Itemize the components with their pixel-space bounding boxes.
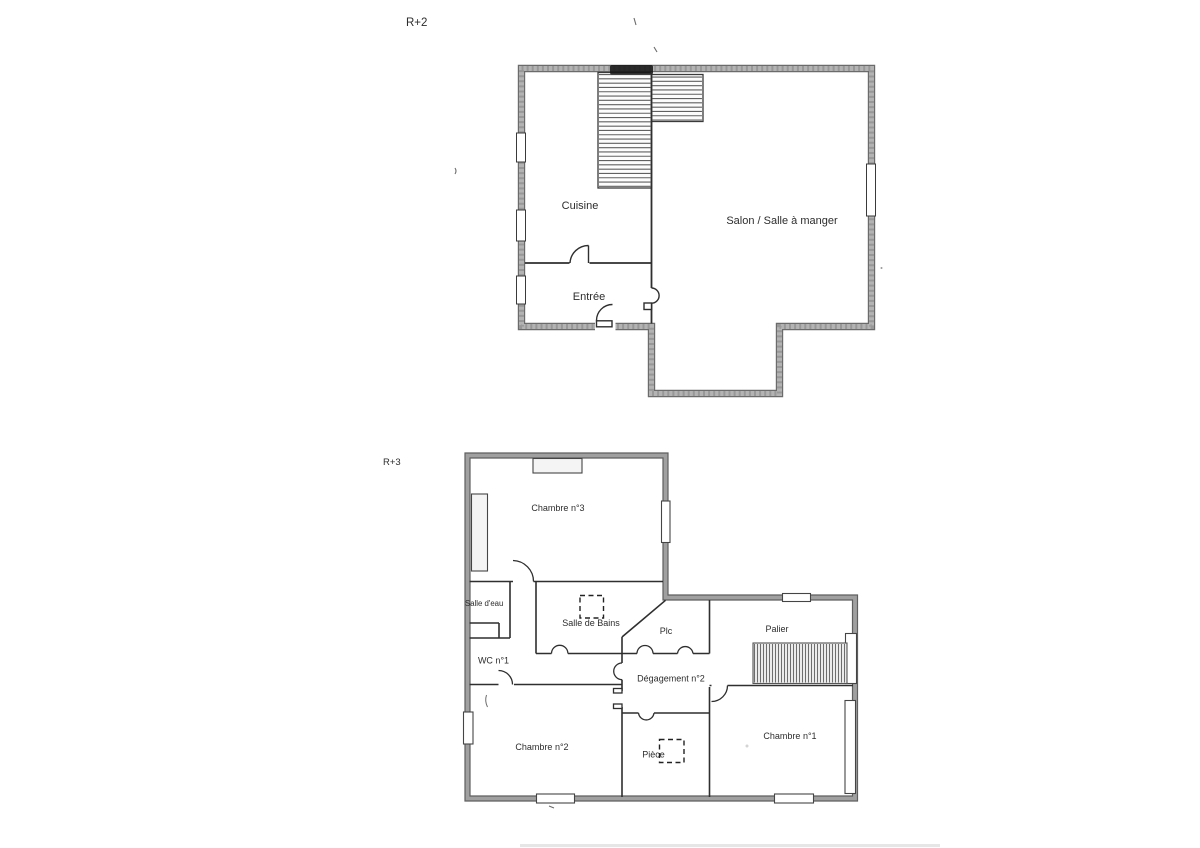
floorplan-canvas: R+2 [0,0,1200,848]
door-arc-chambre3 [513,561,534,582]
window-right-1 [867,164,876,216]
door-arc-salle-de-bains [552,645,568,653]
window-top-palier [783,594,811,602]
room-label-plc: Plc [660,626,673,636]
window-left-chambre2 [464,712,474,744]
room-label-piece: Pièce [642,750,665,760]
floor-label-r3: R+3 [383,457,401,468]
window-left-2 [517,210,526,241]
door-jamb-chambre2-top [614,689,623,694]
door-jamb-salon [644,303,652,310]
room-label-degagement: Dégagement n°2 [637,674,705,684]
door-arc-chambre1 [712,686,728,702]
speck-1 [634,18,636,25]
chimney-top-chambre3 [533,459,582,474]
window-right-chambre3 [662,501,671,543]
window-bottom-chambre2 [537,794,575,803]
window-left-1 [517,133,526,162]
room-label-wc: WC n°1 [478,656,509,666]
door-leaf-entrance [597,321,613,327]
speck-6 [549,806,554,808]
door-arc-degagement-west [614,663,622,680]
door-arc-piece [639,713,655,720]
interior-walls-r3 [470,582,854,798]
scan-artifacts-r3 [486,695,940,847]
speck-4 [881,267,883,269]
closet-left-chambre3 [472,494,488,571]
door-arc-entrance [597,305,613,321]
room-label-entree: Entrée [573,291,605,303]
room-label-palier: Palier [765,624,788,634]
room-label-salle-deau: Salle d'eau [465,599,503,608]
floorplan-document: R+2 [0,0,1200,848]
speck-3 [455,168,456,174]
closet-right-chambre1 [845,701,856,794]
room-label-cuisine: Cuisine [562,200,599,212]
door-arc-cuisine [570,246,589,264]
floor-plan-r2: R+2 [406,17,883,394]
room-label-chambre2: Chambre n°2 [515,742,568,752]
speck-5 [486,695,488,707]
page-edge-shadow [520,844,940,847]
speck-7 [746,745,749,748]
fixture-salle-de-bains [580,596,604,619]
doors-r3 [499,561,728,720]
door-jamb-chambre2-bottom [614,704,623,709]
room-label-salle-de-bains: Salle de Bains [562,618,620,628]
staircase-r3 [753,643,847,684]
room-label-chambre1: Chambre n°1 [763,731,816,741]
doors-r2 [570,246,659,331]
door-arc-salon [652,288,660,303]
room-label-chambre3: Chambre n°3 [531,503,584,513]
staircase-r2 [598,65,703,188]
floor-label-r2: R+2 [406,17,427,29]
door-arc-wc [499,671,513,685]
door-arc-plc-2 [678,647,694,654]
room-label-salon: Salon / Salle à manger [726,215,838,227]
speck-2 [654,47,657,52]
stair-annotation-smudge [610,65,653,75]
floor-plan-r3: R+3 [383,456,940,848]
door-arc-plc-1 [637,646,653,654]
window-left-3 [517,276,526,304]
window-bottom-chambre1 [775,794,814,803]
